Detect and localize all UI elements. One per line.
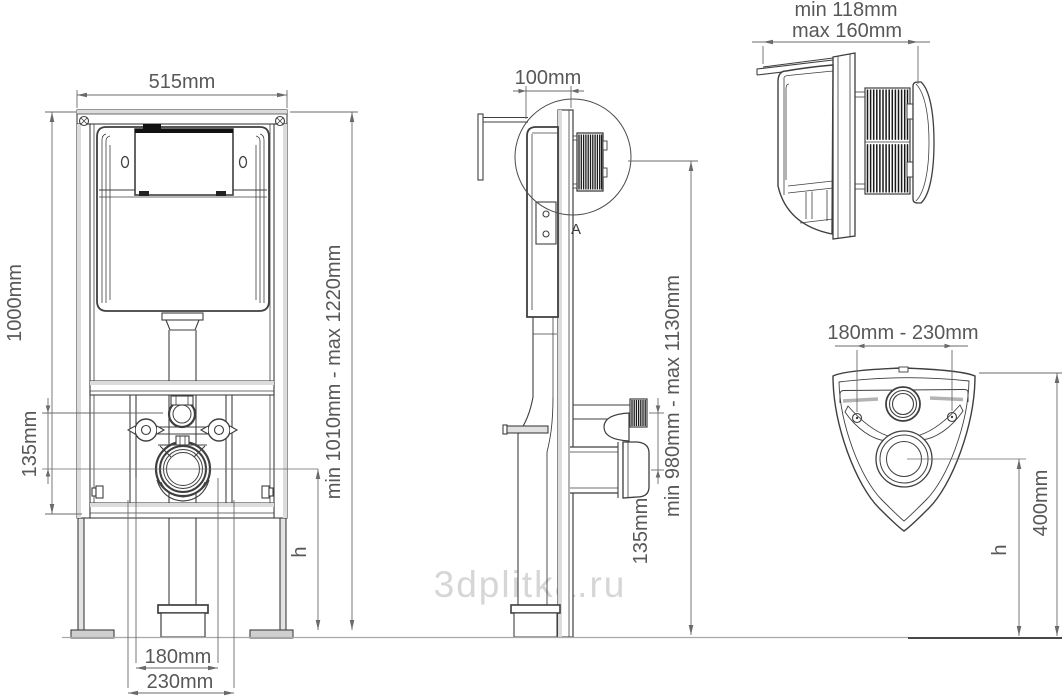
dim-side-height-range: min 980mm - max 1130mm [662,275,684,517]
toilet-frame-technical-drawing: 3dplitka.ru [0,0,1062,698]
drain-bell-connector [623,442,649,498]
dim-front-height-range: min 1010mm - max 1220mm [323,245,345,500]
wall-plate-view [833,367,975,531]
flush-plate-profile [913,82,934,203]
side-foot [514,613,557,637]
technical-drawing-page: 3dplitka.ru [0,0,1062,698]
bowl-support-bar [507,426,548,433]
rail-clamp-icon [92,488,96,496]
front-view [71,110,293,638]
dim-front-inlet-offset: 135mm [19,411,41,478]
fixing-bolt-right [208,419,230,441]
cistern-access-window [135,129,233,195]
dim-plate-hole-spacing: 180mm - 230mm [827,322,978,344]
front-left-foot [71,630,114,638]
dim-plate-drain-height: 400mm [1030,470,1052,537]
dim-detail-depth-max: max 160mm [792,20,902,42]
dim-front-width: 515mm [149,71,216,93]
watermark-text: 3dplitka.ru [434,564,627,605]
detail-view-a [757,53,934,239]
floor-line [62,638,1062,639]
dim-side-depth: 100mm [515,67,582,89]
detail-marker-label: A [571,221,581,238]
dim-front-height-total: 1000mm [4,264,26,342]
floor-drain-sleeve [161,613,205,637]
dim-front-bowl-height: h [289,546,311,557]
rail-section [833,53,855,239]
inlet-port-hole [886,387,920,421]
fixing-bolt-left [135,419,157,441]
dim-side-inlet-offset: 135mm [630,498,652,565]
front-right-foot [250,630,293,638]
dim-detail-depth-min: min 118mm [795,0,898,21]
rail-clamp-icon [262,486,269,498]
dim-front-outer-spacing: 230mm [147,671,214,693]
dim-plate-bowl-height: h [989,544,1011,555]
side-view [478,99,649,637]
wall-bracket-bar [478,114,483,180]
dim-front-drain-spacing: 180mm [145,646,212,668]
